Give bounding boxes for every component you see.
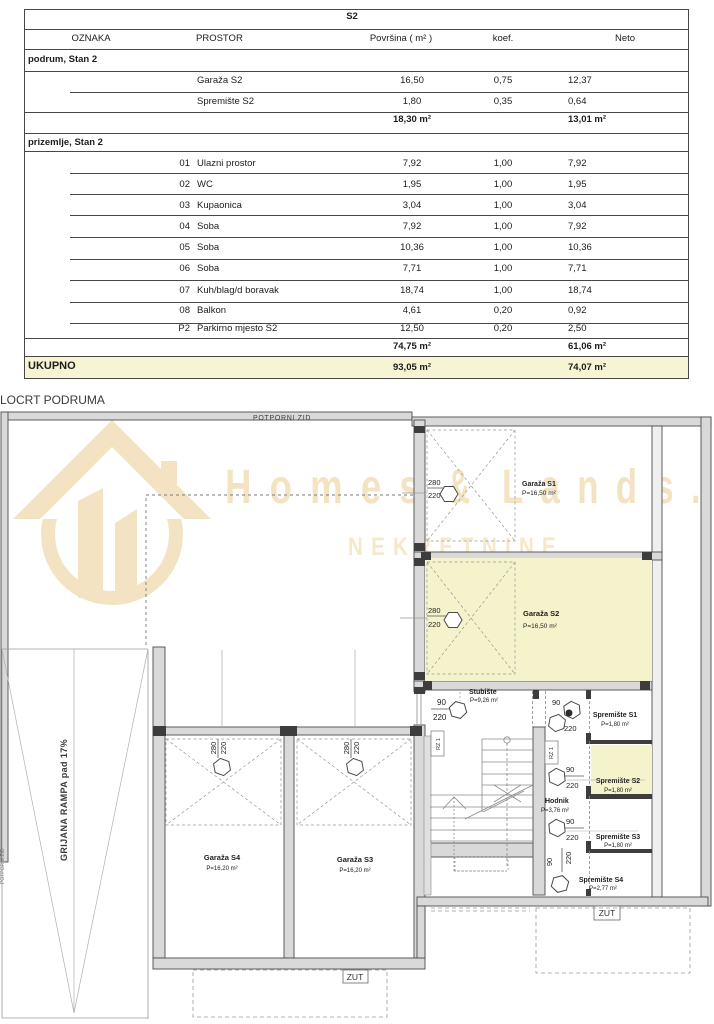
svg-text:220: 220 <box>433 713 447 722</box>
svg-text:Garaža S4: Garaža S4 <box>204 853 241 862</box>
svg-text:POTPORNI ZID: POTPORNI ZID <box>0 848 6 884</box>
svg-text:220: 220 <box>428 620 441 629</box>
svg-text:Hodnik: Hodnik <box>545 798 569 805</box>
svg-text:P=16,50 m²: P=16,50 m² <box>523 623 558 630</box>
svg-text:220: 220 <box>566 781 579 790</box>
svg-text:P=16,50 m²: P=16,50 m² <box>522 490 557 497</box>
svg-text:280: 280 <box>428 478 441 487</box>
svg-text:Spremište S3: Spremište S3 <box>596 834 640 841</box>
svg-text:Stubište: Stubište <box>469 689 497 696</box>
svg-text:Garaža S1: Garaža S1 <box>522 481 556 488</box>
svg-text:220: 220 <box>352 742 361 755</box>
svg-text:280: 280 <box>209 742 218 755</box>
svg-text:Spremište S1: Spremište S1 <box>593 712 637 719</box>
svg-text:P=16,20 m²: P=16,20 m² <box>206 866 237 872</box>
svg-text:ZUT: ZUT <box>347 972 364 982</box>
svg-text:Homes: Homes <box>225 461 438 514</box>
svg-text:280: 280 <box>428 606 441 615</box>
svg-text:90: 90 <box>545 858 554 866</box>
svg-text:P=1,80 m²: P=1,80 m² <box>601 722 629 728</box>
svg-text:280: 280 <box>342 742 351 755</box>
svg-text:220: 220 <box>566 833 579 842</box>
svg-text:Spremište S2: Spremište S2 <box>596 778 640 785</box>
svg-text:220: 220 <box>564 724 577 733</box>
svg-text:RZ 1: RZ 1 <box>436 738 442 750</box>
svg-text:90: 90 <box>566 817 574 826</box>
svg-text:P=1,80 m²: P=1,80 m² <box>604 843 632 849</box>
svg-text:Spremište S4: Spremište S4 <box>579 877 623 884</box>
svg-text:220: 220 <box>564 852 573 865</box>
svg-text:Garaža S3: Garaža S3 <box>337 855 373 864</box>
svg-text:220: 220 <box>428 491 441 500</box>
svg-text:Garaža S2: Garaža S2 <box>523 609 559 618</box>
svg-text:RZ 1: RZ 1 <box>549 747 555 759</box>
svg-text:P=3,76 m²: P=3,76 m² <box>541 808 569 814</box>
svg-text:GRIJANA RAMPA pad 17%: GRIJANA RAMPA pad 17% <box>59 739 69 861</box>
svg-text:P=1,80 m²: P=1,80 m² <box>604 788 632 794</box>
svg-text:90: 90 <box>552 698 560 707</box>
svg-text:P=2,77 m²: P=2,77 m² <box>589 886 617 892</box>
svg-text:90: 90 <box>437 698 446 707</box>
svg-text:POTPORNI ZID: POTPORNI ZID <box>253 415 311 422</box>
svg-text:ZUT: ZUT <box>599 908 616 918</box>
svg-text:90: 90 <box>566 765 574 774</box>
svg-text:220: 220 <box>219 742 228 755</box>
svg-text:P=9,26 m²: P=9,26 m² <box>470 698 498 704</box>
svg-text:P=16,20 m²: P=16,20 m² <box>339 868 370 874</box>
